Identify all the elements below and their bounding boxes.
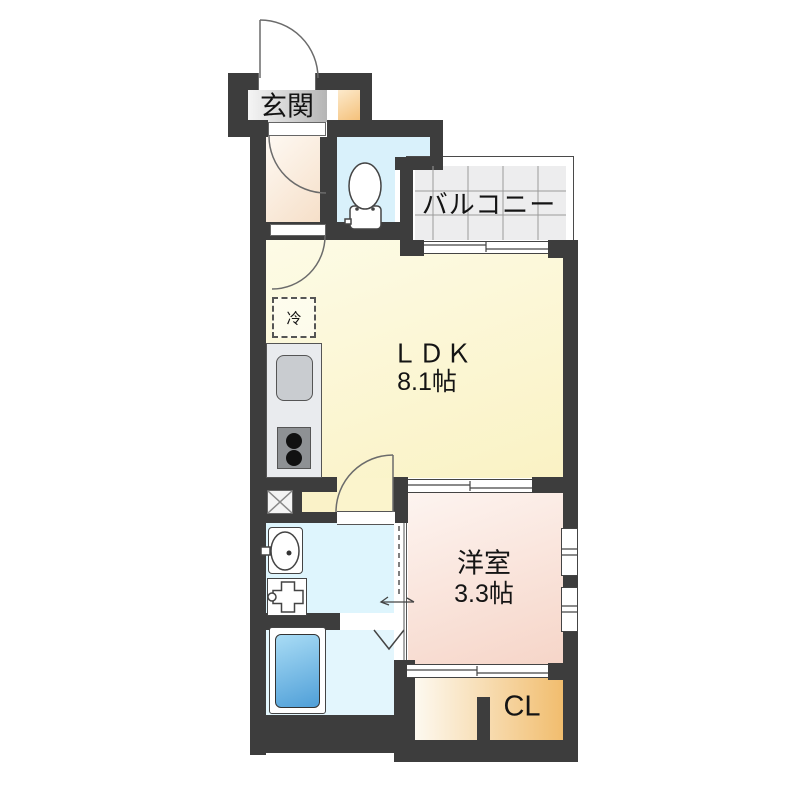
bathtub bbox=[275, 634, 320, 708]
bathroom-door-opening bbox=[340, 613, 394, 630]
ldk-floor-doorway bbox=[337, 478, 393, 512]
wall-segment bbox=[228, 73, 248, 137]
wall-segment bbox=[415, 740, 578, 762]
western-room-window bbox=[561, 528, 578, 576]
western-room-window bbox=[561, 587, 578, 632]
ldk-washroom-threshold bbox=[337, 511, 395, 525]
balcony-window bbox=[424, 241, 548, 254]
hall-floor bbox=[266, 135, 320, 224]
wall-segment bbox=[548, 663, 563, 680]
hall-ldk-door-leaf bbox=[270, 224, 326, 236]
genkan-step bbox=[327, 88, 338, 122]
entrance-door-swing bbox=[260, 20, 318, 78]
western-room-size-label: 3.3帖 bbox=[454, 574, 514, 610]
ldk-size-label: 8.1帖 bbox=[397, 362, 457, 398]
ldk-floor-pocket bbox=[302, 492, 337, 512]
closet-label: CL bbox=[503, 691, 540, 724]
floorplan-canvas: 玄関 バルコニー ＬＤＫ 8.1帖 冷 洋室 3.3帖 CL bbox=[0, 0, 800, 800]
stove bbox=[277, 427, 311, 469]
washer-pan bbox=[267, 578, 307, 616]
kitchen-sink bbox=[276, 355, 313, 401]
genkan-door-leaf bbox=[268, 122, 326, 136]
wall-segment bbox=[532, 477, 563, 493]
wall-segment bbox=[360, 73, 372, 123]
washroom-sliding-strip bbox=[394, 523, 408, 660]
refrigerator-label: 冷 bbox=[286, 308, 301, 329]
wall-segment bbox=[393, 477, 408, 523]
wall-segment bbox=[400, 240, 424, 256]
genkan-label: 玄関 bbox=[260, 85, 314, 124]
closet-sliding-door bbox=[407, 664, 548, 678]
shoe-cabinet bbox=[338, 88, 360, 122]
wall-segment bbox=[400, 157, 413, 245]
pipe-shaft-box bbox=[267, 490, 293, 514]
balcony-label: バルコニー bbox=[422, 185, 556, 222]
wall-segment bbox=[327, 120, 443, 137]
closet-wall-stub bbox=[477, 697, 490, 740]
wall-segment bbox=[563, 250, 578, 493]
wall-segment bbox=[320, 137, 337, 225]
washbasin-counter bbox=[268, 527, 303, 574]
toilet-floor bbox=[337, 158, 395, 225]
ldk-western-sliding-door bbox=[408, 479, 532, 493]
wall-segment bbox=[250, 715, 415, 753]
